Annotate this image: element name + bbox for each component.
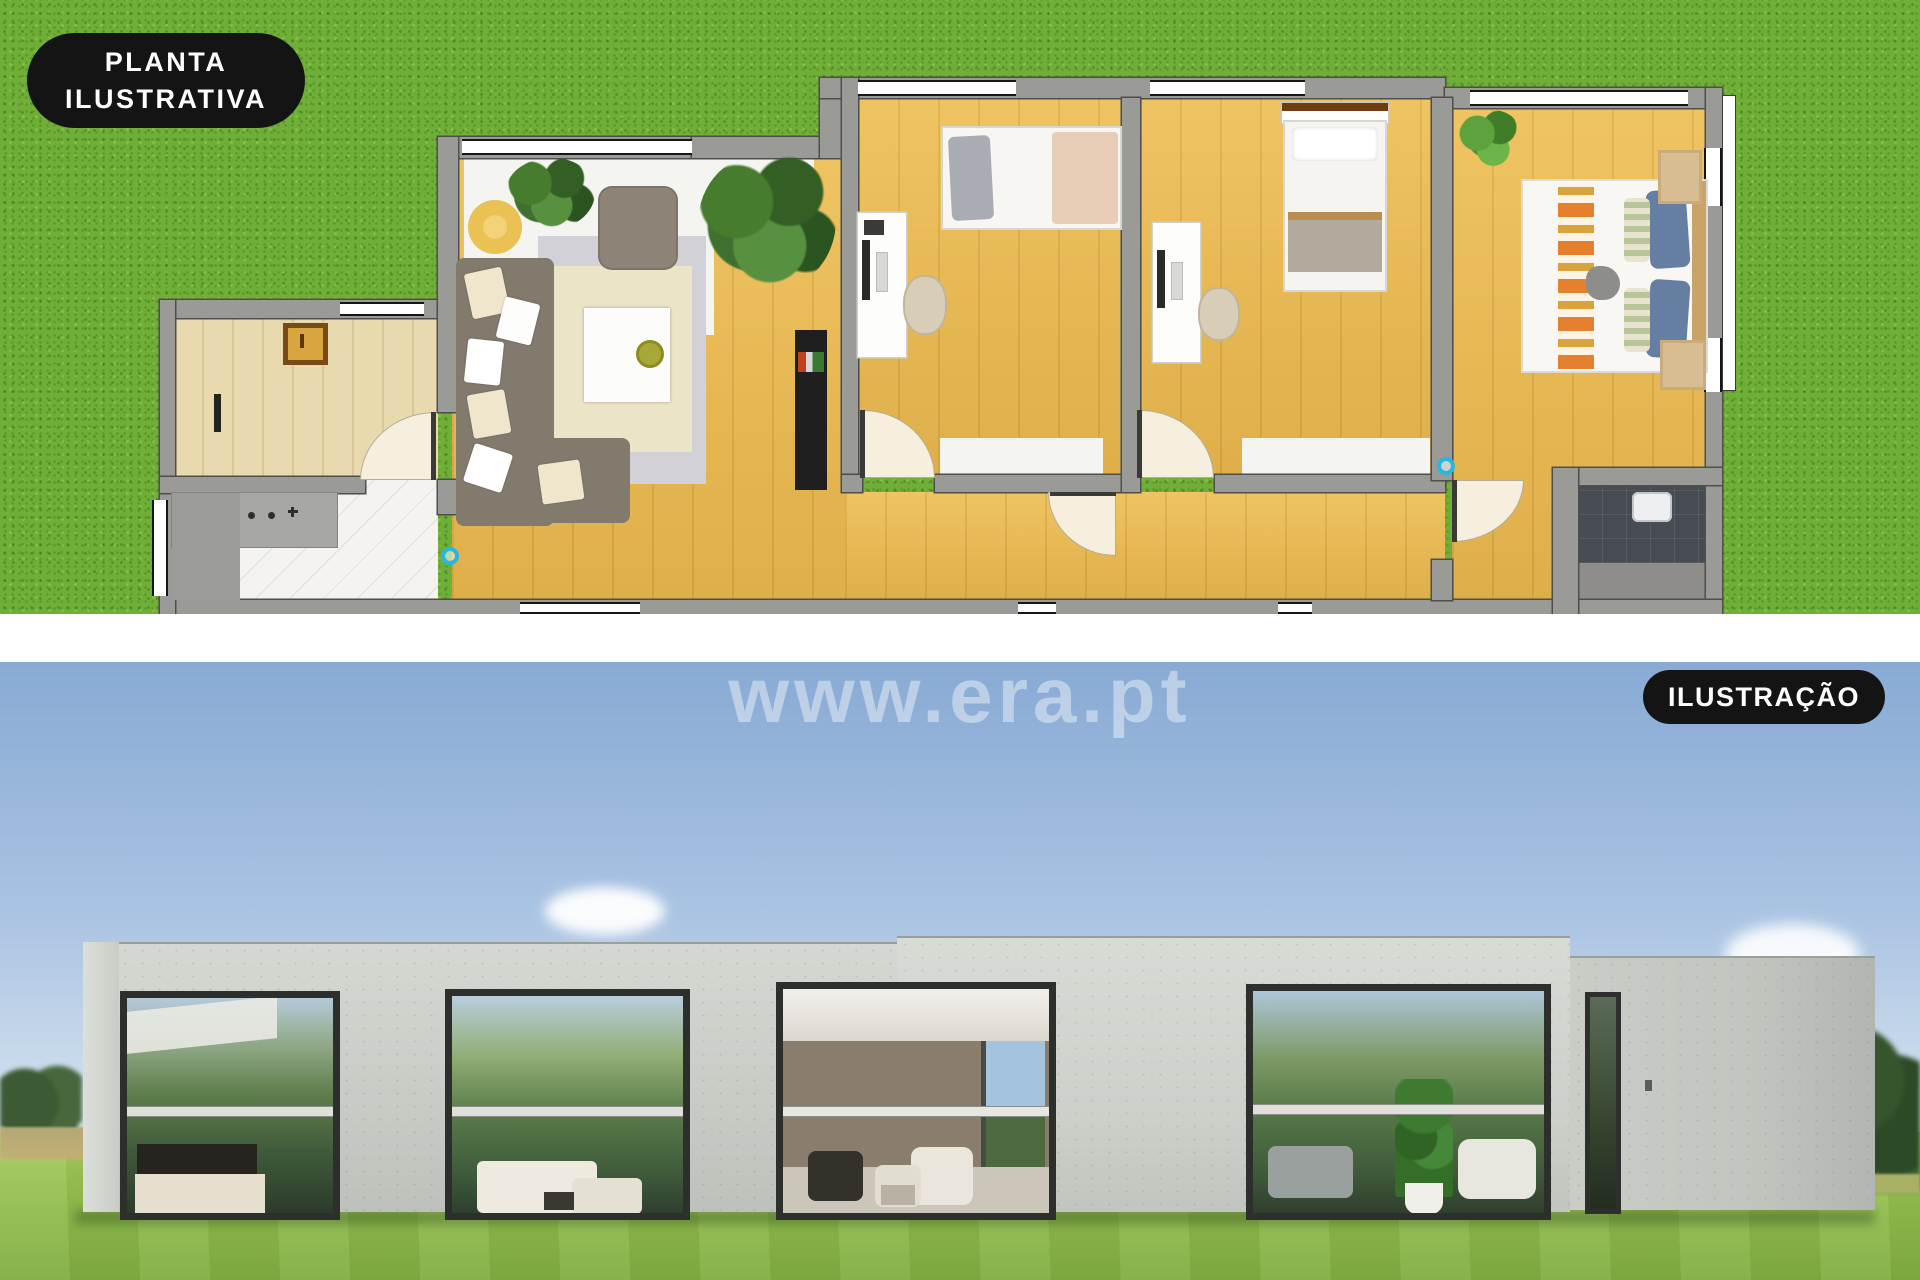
window-2-table [544,1192,574,1210]
bedroom2-keyboard [1171,262,1183,300]
cloud-small [545,887,665,935]
window-1-cream-sofa [135,1174,265,1214]
wall-bottom [160,600,1722,614]
window-master-top [1470,90,1688,106]
faucet-dot-1 [248,512,255,519]
bedroom1-threshold [940,438,1103,478]
wall-ensuite-top [1553,468,1722,485]
window-2 [445,989,690,1220]
window-bottom-corridor-2 [1278,602,1312,614]
window-4-plant-pot [1405,1183,1443,1215]
house-photo-section: www.era.pt ILUSTRAÇÃO [0,662,1920,1280]
window-living-top [462,139,692,155]
bedroom2-headboard-shelf [1282,103,1388,123]
bathroom-counter-side [172,493,240,600]
window-4-gray-sofa [1268,1146,1353,1198]
bedroom2-pillow [1292,127,1378,161]
shower-tray [1632,492,1672,522]
wall-living-left-a [438,137,458,412]
bedroom2-blanket-trim [1288,212,1382,220]
window-master-right-a [1704,148,1722,206]
distant-trees-left [0,1057,82,1133]
bedroom1-blanket [1052,132,1118,224]
door-marker-icon-2 [1437,457,1455,475]
master-bed-teddy [1586,266,1620,300]
wall-bedroom2-master-divider-b [1432,560,1452,600]
master-rug-2 [1660,340,1706,390]
window-3-dark-chair [808,1151,863,1201]
window-2-sofa-2 [572,1178,642,1214]
door-leaf-bedroom1 [860,410,865,478]
window-bathroom-left [152,500,168,596]
window-bottom-corridor [1018,602,1056,614]
window-4-transom [1253,1104,1544,1115]
window-1-transom [127,1106,333,1117]
window-4 [1246,984,1551,1220]
window-4-plant [1395,1079,1453,1197]
photo-badge-label: ILUSTRAÇÃO [1668,682,1860,713]
door-leaf-corridor [1050,492,1116,496]
wall-bedroom1-bottom [935,475,1122,492]
wall-ensuite-left [1553,468,1578,614]
bedroom1-monitor [862,240,870,300]
window-3-table [881,1185,915,1205]
wall-living-left-b [438,480,458,514]
window-3-interior [776,982,1056,1220]
window-bedroom2-top [1150,80,1305,96]
window-1-ceiling-reflection [127,996,277,1054]
ensuite-floor [1578,563,1706,600]
distant-field-left [0,1127,96,1159]
watermark-text: www.era.pt [728,662,1191,741]
door-marker-icon-1 [441,547,459,565]
door-handle-dot [1645,1080,1652,1091]
hall-shelf [214,394,221,432]
sofa-cushion-3 [464,338,504,386]
door-leaf-bedroom2 [1137,410,1142,478]
tv-cabinet-books [798,352,824,372]
bedroom2-monitor [1157,250,1165,308]
corridor-floor [845,492,1445,600]
sofa-cushion-4 [466,389,511,439]
window-hall-top [340,302,424,316]
bedroom2-threshold [1242,438,1430,478]
window-3-transom [783,1106,1049,1117]
window-2-transom [452,1106,683,1117]
door-leaf-hall [431,412,436,480]
bedroom1-laptop [864,220,884,235]
coffee-table-bowl [636,340,664,368]
divider-strip [0,614,1920,662]
ottoman [600,188,676,268]
wall-bedroom2-master-divider [1432,98,1452,480]
bedroom1-keyboard [876,252,888,292]
window-frame-right-outer [1722,95,1736,391]
door-leaf-master [1452,480,1457,542]
master-pillow-striped-2 [1624,288,1650,352]
plan-badge-line2: ILUSTRATIVA [65,81,267,117]
faucet-cross-v [291,507,294,517]
window-3-ceiling [783,989,1056,1041]
window-master-right-b [1704,338,1722,392]
wall-bedroom1-left [842,78,858,492]
floor-plan-section: PLANTA ILUSTRATIVA [0,0,1920,614]
wall-hall-bath-divider [160,477,365,493]
window-4-white-tub [1458,1139,1536,1199]
bedroom1-chair [905,277,945,333]
master-pillow-striped-1 [1624,198,1650,262]
plan-badge: PLANTA ILUSTRATIVA [27,33,305,128]
window-bedroom1-top [858,80,1016,96]
sofa-cushion-6 [537,459,584,504]
bedroom2-blanket [1288,220,1382,272]
plan-badge-line1: PLANTA [105,44,228,80]
window-1 [120,991,340,1220]
hall-cabinet [283,323,328,365]
bedroom2-chair [1200,289,1238,339]
house-corner-pillar [83,942,119,1212]
wall-bedroom2-bottom [1215,475,1445,492]
master-rug-1 [1658,150,1702,204]
window-5-narrow [1585,992,1621,1214]
window-bottom-living [520,602,640,614]
faucet-dot-2 [268,512,275,519]
hall-cabinet-handle [300,334,304,348]
real-estate-composite-image: PLANTA ILUSTRATIVA [0,0,1920,1280]
photo-badge: ILUSTRAÇÃO [1643,670,1885,724]
wall-bedroom1-bottom-stub [842,475,862,492]
bedroom1-pillow [948,135,994,221]
